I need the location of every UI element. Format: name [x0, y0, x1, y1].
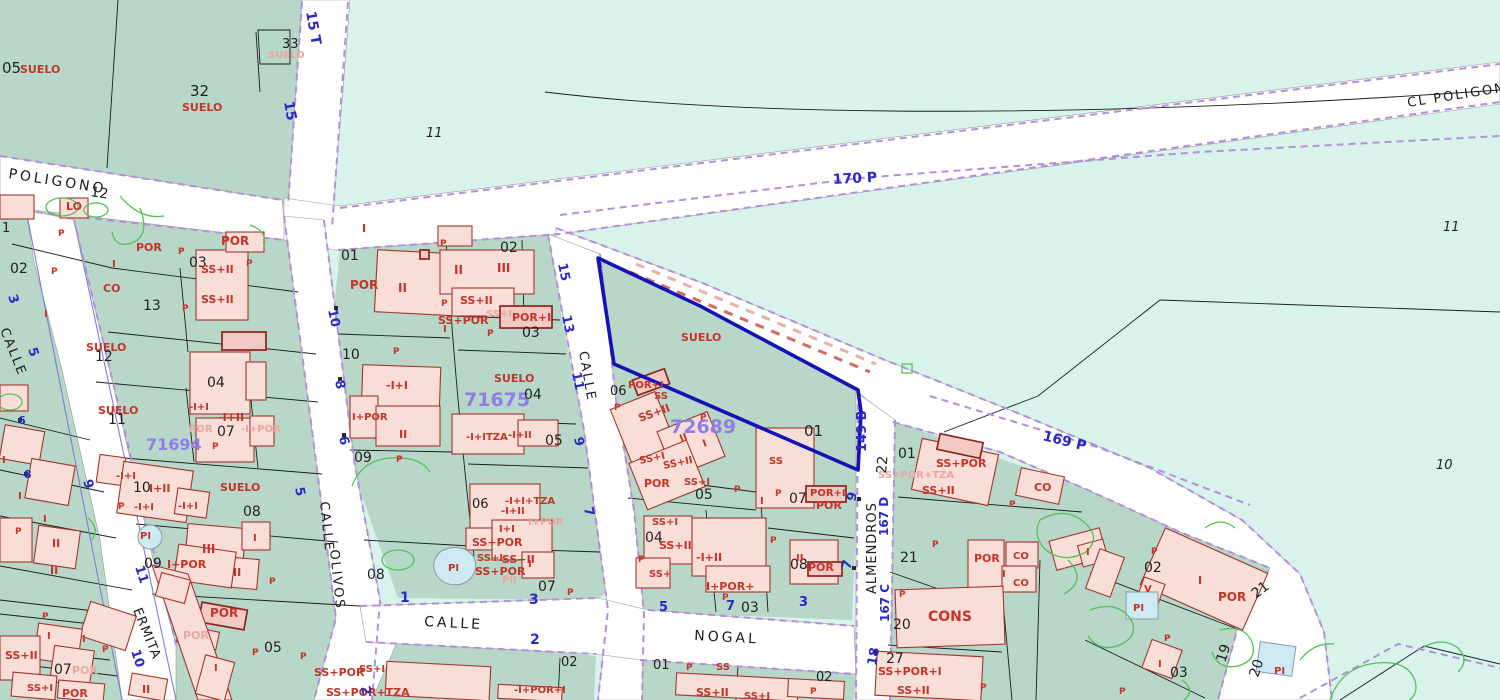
- cadastral-map[interactable]: 05SUELO32SUELO33SUELO15 T15POLIGONO12CL …: [0, 0, 1500, 700]
- map-label: PI: [140, 531, 151, 542]
- map-label: -I+I: [178, 501, 198, 512]
- map-label: 07: [217, 424, 235, 440]
- map-label: 12: [95, 349, 113, 365]
- map-label: 03: [1170, 665, 1188, 681]
- map-label: P: [722, 593, 729, 603]
- map-label: 06: [472, 497, 489, 512]
- map-label: I: [47, 631, 51, 642]
- map-label: POR: [644, 477, 670, 490]
- map-label: 08: [243, 504, 261, 520]
- map-label: I+II: [149, 482, 171, 495]
- map-label: 2: [530, 632, 540, 648]
- map-label: -I+I: [134, 502, 154, 513]
- map-label: SS+POR: [475, 565, 526, 578]
- map-label: SS+I: [359, 664, 385, 675]
- map-label: CO: [1013, 578, 1029, 589]
- map-label: 1: [400, 590, 410, 606]
- map-label: 167 C: [878, 584, 892, 622]
- map-label: 05: [2, 59, 21, 77]
- map-label: P: [686, 663, 693, 673]
- map-label: POR: [62, 687, 88, 700]
- map-label: I: [1198, 574, 1202, 587]
- map-label: P: [441, 299, 448, 309]
- map-label: CONS: [928, 609, 972, 625]
- map-label: II: [399, 428, 407, 441]
- map-label: I: [253, 533, 257, 544]
- map-label: SS+POR+I: [878, 665, 942, 678]
- map-label: SS+POR+TZA: [878, 470, 954, 481]
- map-label: SS+I: [744, 691, 770, 700]
- map-label: -I+I: [189, 402, 209, 413]
- map-label: 01: [898, 446, 916, 462]
- map-label: I: [112, 259, 116, 270]
- map-label: SS+II: [460, 294, 493, 307]
- map-label: II: [142, 683, 150, 696]
- map-label: P: [396, 455, 403, 465]
- map-label: I: [2, 455, 6, 466]
- map-label: I: [43, 514, 47, 525]
- map-label: II: [50, 564, 58, 577]
- map-label: P: [614, 403, 621, 413]
- map-label: 15: [280, 100, 299, 122]
- map-label: I: [1158, 659, 1162, 670]
- map-label: SS+II: [696, 686, 729, 699]
- map-label: POR: [221, 234, 249, 248]
- map-label: P: [567, 588, 574, 598]
- map-label: P: [899, 590, 906, 600]
- map-label: P: [770, 536, 777, 546]
- map-label: P: [252, 648, 259, 658]
- map-label: I: [18, 491, 22, 502]
- map-label: 01: [804, 422, 823, 440]
- map-label: SS+II: [201, 263, 234, 276]
- map-label: SUELO: [268, 50, 305, 61]
- map-label: SUELO: [220, 481, 260, 494]
- map-label: P: [300, 652, 307, 662]
- map-label: SUELO: [20, 63, 60, 76]
- map-label: POR: [1218, 590, 1246, 604]
- map-label: SUELO: [182, 101, 222, 114]
- map-label: 6: [18, 414, 26, 427]
- map-label: 03: [741, 600, 759, 616]
- map-label: POR: [350, 278, 378, 292]
- map-label: P: [246, 259, 253, 269]
- map-label: P: [58, 229, 65, 239]
- map-label: -I+ITZA: [466, 432, 508, 443]
- map-label: -I+II: [696, 551, 722, 564]
- map-label: P: [1119, 687, 1126, 697]
- map-label: POR: [189, 424, 213, 435]
- map-label: POR: [816, 499, 842, 512]
- map-label: SS+: [649, 569, 671, 580]
- map-label: I: [760, 496, 764, 507]
- map-label: 02: [816, 670, 833, 685]
- map-label: PI: [1274, 666, 1285, 677]
- map-label: 71675: [464, 389, 530, 411]
- map-label: P: [980, 683, 987, 693]
- map-label: SUELO: [494, 372, 534, 385]
- map-label: P: [118, 502, 125, 512]
- map-label: SS+I: [684, 477, 710, 488]
- map-label: CO: [1013, 551, 1029, 562]
- map-label: POR: [808, 561, 834, 574]
- map-label: 11: [426, 126, 443, 141]
- map-label: 07: [54, 662, 72, 678]
- map-label: PI: [1133, 603, 1144, 614]
- map-label: II: [398, 281, 407, 295]
- map-label: 02: [500, 240, 518, 256]
- map-label: P: [487, 329, 494, 339]
- map-label: SS+I: [477, 553, 503, 564]
- map-label: P: [178, 247, 185, 257]
- map-label: P: [51, 267, 58, 277]
- map-label: P: [1151, 547, 1158, 557]
- map-label: 04: [524, 387, 542, 403]
- map-label: -I+POR+I: [514, 685, 566, 696]
- map-label: 1: [2, 221, 10, 236]
- map-label: 20: [893, 617, 911, 633]
- map-label: SS: [769, 456, 783, 467]
- map-label: POR+I: [512, 311, 551, 324]
- map-label: I: [82, 634, 86, 645]
- map-label: CO: [1034, 481, 1051, 494]
- map-label: NOGAL: [694, 628, 759, 647]
- map-label: I: [443, 324, 447, 335]
- map-label: POR: [72, 664, 98, 677]
- map-label: SS+II: [5, 649, 38, 662]
- map-label: 8: [24, 468, 32, 481]
- map-label: III: [202, 542, 215, 556]
- map-label: POR+I: [810, 488, 846, 499]
- map-label: III: [497, 261, 510, 275]
- map-label: 170 P: [832, 170, 877, 188]
- map-label: PII: [502, 575, 517, 586]
- map-label: P: [1164, 634, 1171, 644]
- map-label: 10: [1436, 458, 1453, 473]
- map-label: POR: [210, 606, 238, 620]
- map-label: POR: [974, 552, 1000, 565]
- map-label: SS+II: [201, 293, 234, 306]
- map-label: 09: [354, 450, 372, 466]
- map-label: 11: [108, 412, 126, 428]
- map-label: 149 B: [855, 410, 870, 452]
- map-label: 11: [1443, 220, 1460, 235]
- map-label: P: [269, 577, 276, 587]
- map-label: I: [214, 663, 218, 674]
- map-label: POR: [183, 629, 209, 642]
- map-label: V: [1144, 584, 1152, 595]
- map-label: -I+II: [508, 430, 532, 441]
- map-label: -I+I: [386, 379, 408, 392]
- map-label: SS+I: [27, 683, 53, 694]
- map-label: SS+POR: [472, 536, 523, 549]
- map-label: P: [775, 489, 782, 499]
- map-label: 32: [190, 82, 209, 100]
- map-label: POR+I: [628, 380, 664, 391]
- map-label: 10: [342, 347, 360, 363]
- map-label: 02: [561, 655, 578, 670]
- cadastral-map-viewport[interactable]: 05SUELO32SUELO33SUELO15 T15POLIGONO12CL …: [0, 0, 1500, 700]
- map-label: 03: [522, 325, 540, 341]
- map-label: P: [932, 540, 939, 550]
- map-label: 21: [900, 550, 918, 566]
- map-label: P: [810, 687, 817, 697]
- map-label: P: [102, 645, 109, 655]
- map-label: SS+I: [652, 517, 678, 528]
- map-label: PI: [448, 563, 459, 574]
- map-label: 01: [653, 658, 670, 673]
- map-label: P: [700, 413, 707, 423]
- map-label: I: [362, 222, 366, 235]
- map-label: CALLE: [424, 614, 484, 633]
- map-label: CO: [103, 282, 120, 295]
- map-label: 07: [789, 491, 807, 507]
- map-label: 71694: [146, 435, 202, 454]
- map-label: 06: [610, 384, 627, 399]
- map-label: 18: [865, 646, 883, 666]
- map-label: I: [1086, 547, 1090, 558]
- map-label: -I+II: [501, 506, 525, 517]
- map-label: I+I: [499, 524, 515, 535]
- map-label: POR: [136, 241, 162, 254]
- map-label: I+POR: [528, 517, 564, 528]
- map-label: P: [734, 485, 741, 495]
- map-label: SS+I: [486, 309, 512, 320]
- map-label: SS+POR: [936, 457, 987, 470]
- map-label: I: [1002, 569, 1006, 580]
- map-label: LO: [66, 200, 82, 213]
- map-label: 02: [1144, 560, 1162, 576]
- map-label: II: [454, 263, 463, 277]
- map-label: 01: [341, 248, 359, 264]
- map-label: P: [212, 442, 219, 452]
- map-label: -I+II: [218, 411, 244, 424]
- map-label: SS+II: [659, 539, 692, 552]
- map-label: P: [182, 304, 189, 314]
- map-label: SS+POR: [314, 666, 365, 679]
- map-label: SUELO: [681, 331, 721, 344]
- map-label: II: [796, 553, 803, 564]
- map-label: P: [15, 527, 22, 537]
- map-label: 05: [545, 433, 563, 449]
- map-label: 13: [143, 298, 161, 314]
- map-label: P: [638, 555, 645, 565]
- map-label: I+POR: [167, 558, 207, 571]
- map-label: 08: [367, 567, 385, 583]
- map-label: 02: [10, 261, 28, 277]
- map-label: SS: [716, 662, 730, 673]
- map-label: II: [233, 566, 241, 579]
- map-label: 167 D: [877, 497, 891, 536]
- map-label: I+POR+: [706, 580, 754, 593]
- map-label: 05: [695, 487, 713, 503]
- map-label: P: [393, 347, 400, 357]
- map-label: P: [440, 239, 447, 249]
- map-label: 07: [538, 579, 556, 595]
- map-label: SS+II: [922, 484, 955, 497]
- map-label: I: [528, 559, 532, 570]
- map-label: 04: [207, 375, 225, 391]
- map-label: SS: [654, 391, 668, 402]
- map-label: P: [1009, 500, 1016, 510]
- map-label: 3: [799, 595, 808, 610]
- map-label: II: [52, 537, 60, 550]
- map-label: I: [44, 309, 48, 320]
- map-label: I+POR: [352, 412, 388, 423]
- map-label: 05: [264, 640, 282, 656]
- map-label: P: [42, 612, 49, 622]
- map-label: -I+POR: [241, 424, 281, 435]
- map-label: 12: [89, 184, 109, 203]
- map-label: SS+II: [897, 684, 930, 697]
- map-label: 5: [659, 600, 668, 615]
